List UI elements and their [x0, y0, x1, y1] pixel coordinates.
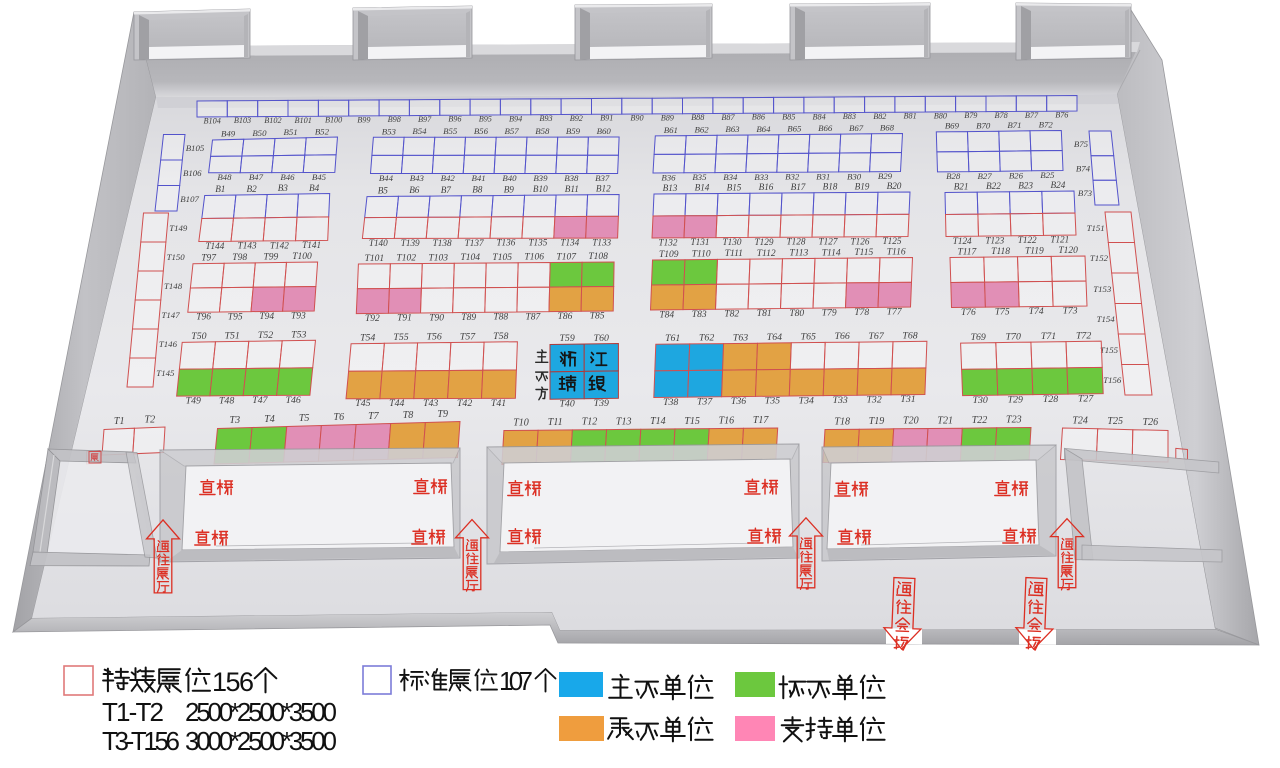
- svg-text:B9: B9: [504, 184, 515, 194]
- svg-text:T78: T78: [854, 308, 869, 318]
- svg-text:T15: T15: [684, 416, 700, 427]
- svg-text:T43: T43: [423, 398, 438, 409]
- svg-text:T95: T95: [228, 312, 243, 322]
- svg-text:T125: T125: [883, 236, 902, 246]
- svg-text:T77: T77: [887, 308, 903, 318]
- svg-text:B52: B52: [315, 126, 330, 136]
- svg-text:T148: T148: [164, 281, 183, 291]
- svg-text:T103: T103: [429, 253, 449, 263]
- svg-text:T21: T21: [937, 415, 953, 426]
- svg-text:B11: B11: [565, 184, 579, 194]
- svg-text:B99: B99: [357, 115, 370, 124]
- svg-text:T16: T16: [719, 416, 735, 427]
- svg-text:T51: T51: [225, 331, 240, 342]
- svg-text:T14: T14: [650, 416, 666, 427]
- svg-text:B80: B80: [934, 111, 947, 120]
- svg-text:T65: T65: [801, 332, 816, 343]
- svg-text:T143: T143: [238, 241, 257, 251]
- svg-text:T92: T92: [365, 314, 380, 324]
- svg-text:T156: T156: [1103, 375, 1122, 385]
- svg-text:T79: T79: [822, 308, 837, 318]
- svg-text:B43: B43: [410, 173, 425, 183]
- svg-text:T119: T119: [1025, 247, 1044, 257]
- svg-text:T58: T58: [493, 331, 508, 342]
- svg-text:T100: T100: [292, 252, 312, 262]
- svg-text:B60: B60: [597, 126, 612, 136]
- svg-text:B7: B7: [441, 185, 452, 195]
- svg-text:T135: T135: [528, 238, 547, 248]
- svg-text:B33: B33: [754, 172, 769, 182]
- svg-text:B61: B61: [664, 125, 678, 135]
- svg-text:T128: T128: [787, 237, 806, 247]
- svg-text:T46: T46: [286, 395, 301, 406]
- svg-text:T54: T54: [360, 333, 375, 344]
- svg-text:T90: T90: [429, 313, 444, 323]
- svg-text:T4: T4: [264, 414, 275, 425]
- svg-text:B40: B40: [502, 173, 517, 183]
- svg-text:T116: T116: [887, 248, 906, 258]
- svg-text:107: 107: [499, 666, 533, 696]
- svg-text:T99: T99: [264, 253, 279, 263]
- svg-text:B53: B53: [382, 126, 397, 136]
- svg-text:B59: B59: [566, 126, 581, 136]
- svg-text:T18: T18: [834, 416, 850, 427]
- svg-text:T3-T156: T3-T156: [102, 726, 180, 756]
- svg-text:B84: B84: [812, 112, 825, 121]
- svg-text:T141: T141: [302, 240, 321, 250]
- svg-text:2500*2500*3500: 2500*2500*3500: [185, 697, 337, 727]
- svg-text:T28: T28: [1043, 394, 1058, 405]
- svg-text:B69: B69: [945, 121, 960, 131]
- svg-text:T111: T111: [725, 249, 743, 259]
- svg-text:T102: T102: [397, 254, 417, 264]
- svg-text:T7: T7: [368, 411, 380, 422]
- svg-text:T72: T72: [1076, 330, 1091, 341]
- svg-text:T19: T19: [869, 416, 885, 427]
- svg-text:B4: B4: [309, 183, 320, 193]
- svg-text:T23: T23: [1006, 415, 1022, 426]
- svg-text:B24: B24: [1050, 180, 1065, 190]
- svg-text:T142: T142: [270, 240, 289, 250]
- svg-text:T139: T139: [401, 238, 420, 248]
- svg-text:T155: T155: [1100, 345, 1119, 355]
- svg-text:B51: B51: [284, 127, 298, 137]
- svg-text:T31: T31: [900, 394, 915, 405]
- svg-text:T91: T91: [397, 314, 412, 324]
- svg-text:T5: T5: [299, 413, 310, 424]
- svg-text:B86: B86: [752, 113, 766, 122]
- svg-text:B90: B90: [630, 114, 643, 123]
- svg-text:B44: B44: [379, 173, 394, 183]
- svg-text:B81: B81: [903, 112, 916, 121]
- svg-text:T37: T37: [697, 396, 713, 407]
- svg-text:B36: B36: [661, 172, 676, 182]
- svg-text:T10: T10: [513, 417, 529, 428]
- svg-text:T124: T124: [953, 236, 972, 246]
- svg-text:156: 156: [212, 667, 254, 697]
- svg-text:T85: T85: [590, 312, 605, 322]
- svg-text:T101: T101: [365, 254, 385, 264]
- svg-text:T114: T114: [822, 248, 841, 258]
- svg-text:B91: B91: [600, 114, 613, 123]
- svg-text:B62: B62: [695, 125, 710, 135]
- svg-text:T76: T76: [961, 308, 976, 318]
- svg-text:T132: T132: [659, 237, 678, 247]
- svg-text:B56: B56: [474, 126, 489, 136]
- svg-text:T13: T13: [616, 416, 632, 427]
- svg-text:B83: B83: [843, 112, 856, 121]
- svg-text:B26: B26: [1009, 171, 1024, 181]
- svg-text:T86: T86: [558, 312, 573, 322]
- svg-text:B34: B34: [723, 172, 738, 182]
- svg-text:T48: T48: [219, 395, 234, 406]
- svg-text:B38: B38: [564, 173, 579, 183]
- svg-text:T6: T6: [334, 412, 345, 423]
- svg-text:T75: T75: [995, 307, 1010, 317]
- svg-text:B63: B63: [725, 124, 740, 134]
- svg-text:T29: T29: [1008, 394, 1023, 405]
- svg-text:T40: T40: [559, 399, 574, 410]
- svg-text:T11: T11: [548, 417, 563, 428]
- svg-text:T146: T146: [159, 339, 178, 349]
- svg-text:T96: T96: [196, 313, 211, 323]
- svg-text:B3: B3: [278, 183, 289, 193]
- svg-text:B19: B19: [855, 181, 870, 191]
- svg-text:T144: T144: [205, 241, 224, 251]
- svg-text:T118: T118: [991, 247, 1010, 257]
- svg-text:T136: T136: [496, 238, 515, 248]
- svg-text:T98: T98: [232, 253, 247, 263]
- svg-text:T127: T127: [819, 237, 838, 247]
- svg-text:T133: T133: [592, 238, 611, 248]
- svg-text:B102: B102: [264, 116, 281, 125]
- svg-text:T150: T150: [167, 252, 186, 262]
- svg-text:B18: B18: [823, 182, 838, 192]
- svg-text:B37: B37: [595, 173, 610, 183]
- svg-text:T122: T122: [1018, 235, 1037, 245]
- svg-text:B68: B68: [880, 123, 895, 133]
- svg-text:B30: B30: [847, 171, 862, 181]
- svg-text:T63: T63: [733, 332, 748, 343]
- svg-text:T34: T34: [799, 395, 814, 406]
- svg-text:B89: B89: [661, 113, 674, 122]
- svg-text:T80: T80: [789, 309, 804, 319]
- svg-text:T108: T108: [588, 252, 608, 262]
- svg-text:B98: B98: [388, 115, 401, 124]
- svg-text:B5: B5: [378, 186, 389, 196]
- svg-text:B48: B48: [217, 172, 232, 182]
- svg-text:B76: B76: [1055, 111, 1069, 120]
- svg-text:B54: B54: [412, 126, 427, 136]
- svg-text:B65: B65: [787, 124, 802, 134]
- svg-text:B58: B58: [535, 126, 550, 136]
- svg-text:T44: T44: [389, 398, 404, 409]
- svg-text:B47: B47: [249, 172, 264, 182]
- svg-text:T57: T57: [460, 331, 476, 342]
- svg-text:T115: T115: [854, 248, 873, 258]
- svg-text:T120: T120: [1058, 246, 1078, 256]
- svg-text:3000*2500*3500: 3000*2500*3500: [185, 726, 337, 756]
- svg-text:B29: B29: [878, 171, 893, 181]
- svg-text:T67: T67: [868, 331, 884, 342]
- svg-text:B14: B14: [695, 183, 710, 193]
- svg-text:B104: B104: [204, 116, 221, 125]
- svg-text:T81: T81: [757, 309, 772, 319]
- svg-text:T134: T134: [560, 238, 579, 248]
- svg-text:T151: T151: [1087, 223, 1105, 233]
- svg-text:B103: B103: [234, 116, 251, 125]
- svg-text:T112: T112: [757, 249, 776, 259]
- svg-text:T47: T47: [252, 395, 268, 406]
- svg-text:T1-T2: T1-T2: [102, 697, 164, 727]
- svg-text:T70: T70: [1006, 331, 1021, 342]
- svg-text:B12: B12: [596, 184, 611, 194]
- svg-text:B21: B21: [954, 181, 969, 191]
- svg-text:B31: B31: [816, 172, 830, 182]
- svg-text:T41: T41: [491, 398, 506, 409]
- svg-text:T32: T32: [866, 395, 881, 406]
- svg-text:T66: T66: [835, 331, 850, 342]
- svg-text:B28: B28: [946, 171, 961, 181]
- svg-text:T130: T130: [723, 237, 742, 247]
- svg-text:B94: B94: [509, 114, 522, 123]
- svg-text:B23: B23: [1018, 181, 1033, 191]
- svg-text:T147: T147: [162, 310, 181, 320]
- svg-text:B49: B49: [221, 129, 236, 139]
- svg-text:T69: T69: [971, 332, 986, 343]
- svg-text:B20: B20: [887, 181, 902, 191]
- svg-text:T93: T93: [291, 312, 306, 322]
- svg-text:T8: T8: [403, 410, 414, 421]
- svg-text:T113: T113: [789, 249, 808, 259]
- svg-text:B105: B105: [186, 143, 205, 153]
- svg-text:T126: T126: [851, 236, 870, 246]
- svg-text:T49: T49: [186, 396, 201, 407]
- svg-text:T9: T9: [437, 409, 448, 420]
- svg-text:T107: T107: [556, 252, 577, 262]
- svg-text:T106: T106: [524, 253, 544, 263]
- svg-text:T88: T88: [493, 313, 508, 323]
- svg-text:T154: T154: [1097, 314, 1116, 324]
- svg-text:T152: T152: [1090, 253, 1109, 263]
- svg-text:T84: T84: [659, 310, 674, 320]
- svg-text:B2: B2: [246, 184, 257, 194]
- svg-text:T89: T89: [461, 313, 476, 323]
- svg-text:T30: T30: [973, 395, 988, 406]
- svg-text:T36: T36: [731, 396, 746, 407]
- svg-text:T104: T104: [461, 253, 481, 263]
- svg-text:T56: T56: [427, 332, 442, 343]
- svg-text:B70: B70: [976, 120, 991, 130]
- svg-text:T52: T52: [258, 330, 273, 341]
- svg-text:B8: B8: [472, 185, 483, 195]
- svg-text:B50: B50: [252, 128, 267, 138]
- svg-text:B27: B27: [978, 171, 993, 181]
- svg-text:T2: T2: [145, 415, 156, 426]
- svg-text:T3: T3: [230, 415, 241, 426]
- svg-text:T68: T68: [902, 331, 917, 342]
- svg-text:T1: T1: [114, 416, 125, 427]
- svg-text:T82: T82: [724, 310, 739, 320]
- svg-text:B41: B41: [472, 173, 486, 183]
- svg-text:B15: B15: [727, 182, 742, 192]
- svg-text:B16: B16: [759, 182, 774, 192]
- svg-text:T137: T137: [465, 238, 484, 248]
- svg-text:T74: T74: [1029, 307, 1044, 317]
- svg-text:B101: B101: [295, 116, 312, 125]
- svg-text:B55: B55: [443, 126, 458, 136]
- svg-text:T117: T117: [957, 247, 977, 257]
- svg-text:B95: B95: [479, 115, 492, 124]
- svg-text:T110: T110: [692, 250, 711, 260]
- svg-text:T87: T87: [526, 312, 542, 322]
- svg-text:B82: B82: [873, 112, 886, 121]
- svg-text:T25: T25: [1107, 416, 1123, 427]
- svg-text:T138: T138: [433, 238, 452, 248]
- svg-text:B35: B35: [692, 172, 707, 182]
- svg-text:T42: T42: [457, 398, 472, 409]
- svg-text:B72: B72: [1039, 120, 1054, 130]
- svg-text:T64: T64: [767, 332, 782, 343]
- svg-text:T131: T131: [691, 237, 710, 247]
- svg-text:T123: T123: [985, 235, 1004, 245]
- svg-text:B66: B66: [818, 123, 833, 133]
- svg-text:T109: T109: [659, 250, 679, 260]
- svg-text:B6: B6: [409, 185, 420, 195]
- svg-text:T62: T62: [699, 333, 714, 344]
- svg-text:T73: T73: [1063, 307, 1078, 317]
- svg-text:B106: B106: [183, 168, 202, 178]
- svg-text:B92: B92: [570, 114, 583, 123]
- svg-text:B73: B73: [1078, 188, 1093, 198]
- svg-text:B74: B74: [1076, 164, 1091, 174]
- svg-text:B39: B39: [533, 173, 548, 183]
- svg-text:T83: T83: [692, 310, 707, 320]
- svg-text:B77: B77: [1025, 111, 1039, 120]
- svg-text:T24: T24: [1072, 415, 1088, 426]
- svg-text:T26: T26: [1143, 417, 1159, 428]
- svg-text:B79: B79: [964, 111, 977, 120]
- svg-text:T17: T17: [753, 415, 770, 426]
- svg-text:B67: B67: [849, 123, 864, 133]
- svg-text:T97: T97: [201, 254, 217, 264]
- svg-text:B88: B88: [691, 113, 704, 122]
- svg-text:B85: B85: [782, 113, 795, 122]
- svg-text:B96: B96: [448, 115, 462, 124]
- svg-text:T94: T94: [259, 312, 274, 322]
- svg-text:B100: B100: [325, 116, 342, 125]
- svg-text:T140: T140: [369, 238, 388, 248]
- svg-text:B25: B25: [1040, 170, 1055, 180]
- svg-text:T50: T50: [191, 331, 206, 342]
- svg-text:T153: T153: [1093, 284, 1112, 294]
- svg-text:B75: B75: [1074, 139, 1089, 149]
- svg-text:T27: T27: [1078, 393, 1094, 404]
- svg-text:T105: T105: [492, 253, 512, 263]
- svg-text:T39: T39: [594, 398, 609, 409]
- svg-text:T149: T149: [169, 223, 188, 233]
- svg-text:B97: B97: [418, 115, 432, 124]
- svg-text:B57: B57: [505, 126, 520, 136]
- svg-text:B42: B42: [441, 173, 456, 183]
- svg-text:B17: B17: [791, 182, 806, 192]
- svg-text:T38: T38: [663, 397, 678, 408]
- svg-text:T55: T55: [393, 332, 408, 343]
- svg-text:B46: B46: [280, 172, 295, 182]
- svg-text:B78: B78: [994, 111, 1007, 120]
- svg-text:T35: T35: [765, 396, 780, 407]
- svg-text:T22: T22: [972, 415, 988, 426]
- svg-text:B13: B13: [663, 183, 678, 193]
- svg-text:B87: B87: [721, 113, 735, 122]
- svg-text:B32: B32: [785, 172, 800, 182]
- svg-text:B45: B45: [312, 172, 327, 182]
- svg-text:B71: B71: [1007, 120, 1021, 130]
- svg-text:T61: T61: [665, 333, 680, 344]
- svg-text:T145: T145: [156, 368, 175, 378]
- svg-text:B107: B107: [180, 194, 199, 204]
- svg-text:T60: T60: [594, 333, 609, 344]
- svg-text:T20: T20: [903, 416, 919, 427]
- svg-text:T12: T12: [582, 417, 598, 428]
- svg-text:T129: T129: [755, 237, 774, 247]
- svg-text:T121: T121: [1050, 235, 1069, 245]
- svg-text:B1: B1: [215, 184, 225, 194]
- svg-text:T59: T59: [559, 333, 574, 344]
- svg-text:B64: B64: [756, 124, 771, 134]
- svg-text:T71: T71: [1041, 331, 1056, 342]
- svg-text:B22: B22: [986, 181, 1001, 191]
- svg-text:B10: B10: [533, 184, 548, 194]
- svg-text:B93: B93: [539, 114, 552, 123]
- svg-text:T33: T33: [833, 395, 848, 406]
- svg-text:T53: T53: [291, 330, 306, 341]
- svg-text:T45: T45: [355, 398, 370, 409]
